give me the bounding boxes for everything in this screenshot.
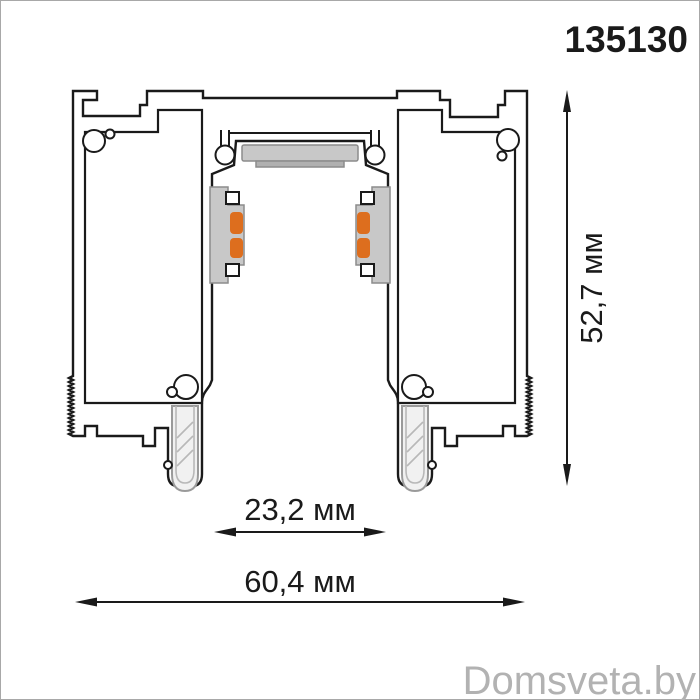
watermark: Domsveta.by bbox=[463, 659, 696, 700]
leg-notch bbox=[428, 461, 436, 469]
technical-drawing-page: 52,7 мм 23,2 мм 60,4 мм 135130 Domsveta.… bbox=[0, 0, 700, 700]
leg-notch bbox=[164, 461, 172, 469]
housing-clip bbox=[226, 264, 239, 276]
conductor-housing-left bbox=[210, 187, 244, 283]
magnet-strip bbox=[242, 145, 358, 161]
housing-clip bbox=[226, 192, 239, 204]
conductor-housing-right bbox=[356, 187, 390, 283]
contact-pad bbox=[357, 212, 370, 234]
left-hollow-chamber bbox=[85, 110, 202, 403]
dimension-outer-width: 60,4 мм bbox=[75, 564, 525, 607]
contact-pad bbox=[230, 238, 243, 258]
outer-width-dimension-label: 60,4 мм bbox=[244, 564, 356, 599]
gasket-right bbox=[402, 406, 428, 491]
dimension-inner-width: 23,2 мм bbox=[214, 492, 386, 537]
product-code: 135130 bbox=[565, 19, 688, 60]
housing-clip bbox=[361, 192, 374, 204]
track-profile-cross-section-drawing: 52,7 мм 23,2 мм 60,4 мм 135130 Domsveta.… bbox=[0, 0, 700, 700]
inner-width-dimension-label: 23,2 мм bbox=[244, 492, 356, 527]
dimension-height: 52,7 мм bbox=[563, 90, 609, 486]
height-dimension-label: 52,7 мм bbox=[574, 232, 609, 344]
contact-pad bbox=[230, 212, 243, 234]
gasket-left bbox=[172, 406, 198, 491]
contact-pad bbox=[357, 238, 370, 258]
housing-clip bbox=[361, 264, 374, 276]
magnet-strip-base bbox=[256, 161, 344, 167]
